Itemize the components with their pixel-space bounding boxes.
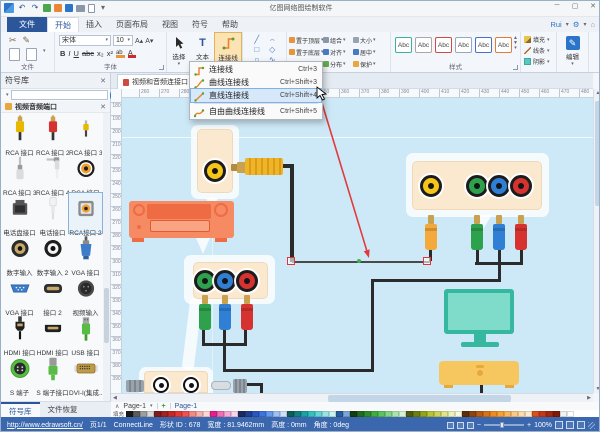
tab-file[interactable]: 文件	[7, 17, 47, 32]
document-icon	[123, 79, 129, 86]
rca-port-green-2[interactable]	[466, 175, 488, 197]
color-swatch-20[interactable]	[266, 411, 273, 417]
color-swatch-52[interactable]	[490, 411, 497, 417]
tab-符号[interactable]: 符号	[185, 17, 215, 32]
ruler-tick: 480	[579, 89, 589, 98]
selected-connector-line[interactable]	[292, 261, 430, 263]
section-close-icon[interactable]: ✕	[100, 103, 106, 111]
rca-plug-green-2[interactable]	[471, 224, 483, 250]
symbol-item-电话盘接口[interactable]: 电话盘接口	[3, 193, 36, 233]
ruler-tick: 440	[499, 89, 509, 98]
symbol-item-数字输入[interactable]: 数字输入	[3, 233, 36, 273]
sidebar-scrollbar[interactable]	[103, 113, 110, 401]
paste-dropdown-icon[interactable]: ▾	[43, 48, 46, 61]
color-swatch-44[interactable]	[434, 411, 441, 417]
zoom-level: 100%	[534, 422, 552, 429]
arrange-icon	[289, 37, 295, 43]
cable[interactable]	[371, 279, 501, 282]
color-swatch-11[interactable]	[203, 411, 210, 417]
speaker-port-1[interactable]	[153, 377, 169, 393]
symbol-item-电话接口[interactable]: 电话接口	[36, 193, 69, 233]
settings-dropdown-icon[interactable]: ▾	[583, 21, 586, 28]
arrange-icon	[323, 37, 329, 43]
color-swatch-12[interactable]	[210, 411, 217, 417]
color-swatch-2[interactable]	[140, 411, 147, 417]
arrange-1-button[interactable]: 置于底层▾	[289, 46, 323, 58]
color-swatch-63[interactable]	[567, 411, 574, 417]
rca-port-yellow-2[interactable]	[420, 175, 442, 197]
rca-plug-blue-2[interactable]	[493, 224, 505, 250]
ruler-tick: 390	[111, 375, 122, 382]
style-group-label: 样式	[391, 61, 520, 71]
color-swatch-22[interactable]	[280, 411, 287, 417]
connector-midpoint-handle[interactable]	[357, 259, 361, 263]
maximize-button[interactable]: ▢	[569, 2, 581, 10]
style-swatch-2[interactable]: Abc	[435, 37, 452, 53]
ruler-tick: 270	[159, 89, 169, 98]
scroll-right-icon[interactable]: ▶	[587, 395, 591, 401]
app-icon[interactable]	[4, 3, 14, 13]
rca-port-red[interactable]	[236, 270, 258, 292]
color-swatch-18[interactable]	[252, 411, 259, 417]
soundbar-knob	[477, 370, 483, 376]
color-swatch-59[interactable]	[539, 411, 546, 417]
symbol-item-视频输入[interactable]: 视频输入	[69, 273, 102, 313]
color-swatch-45[interactable]	[441, 411, 448, 417]
symbol-item-dvi-23[interactable]	[69, 393, 102, 401]
shape-id: 形状 ID : 678	[160, 420, 200, 430]
color-swatch-5[interactable]	[161, 411, 168, 417]
arrange-5-button[interactable]: 分布▾	[323, 58, 353, 70]
arrange-7-button[interactable]: 居中▾	[353, 46, 387, 58]
ruler-tick: 240	[111, 180, 122, 187]
section-title: 视频音频端口	[15, 102, 57, 112]
color-swatch-27[interactable]	[315, 411, 322, 417]
status-bar: http://www.edrawsoft.cn/ 页1/1 ConnectLin…	[1, 417, 600, 432]
add-page-button[interactable]: +	[162, 403, 166, 410]
port-orange-icon	[69, 155, 102, 187]
ribbed-connector[interactable]	[233, 379, 247, 393]
gallery-more-icon[interactable]: ▾	[513, 46, 518, 51]
horizontal-scrollbar[interactable]: ◀ ▶	[111, 393, 593, 402]
symbol-item-VGA 接口[interactable]: VGA 接口	[3, 273, 36, 313]
view-mode-icon-2[interactable]	[457, 422, 464, 429]
symbol-search-input[interactable]	[11, 90, 108, 100]
tab-帮助[interactable]: 帮助	[215, 17, 245, 32]
hdmi-port-icon	[36, 315, 69, 347]
color-swatch-58[interactable]	[532, 411, 539, 417]
cable[interactable]	[202, 343, 226, 346]
color-swatch-53[interactable]	[497, 411, 504, 417]
sidebar-scrollbar-thumb[interactable]	[104, 288, 109, 343]
symbol-library-close-icon[interactable]: ✕	[100, 77, 106, 85]
color-swatch-30[interactable]	[336, 411, 343, 417]
rca-plug-green[interactable]	[199, 304, 211, 330]
grow-font-button[interactable]: A▴	[135, 37, 143, 45]
undo-icon[interactable]: ↶	[17, 3, 27, 13]
color-swatch-38[interactable]	[392, 411, 399, 417]
shrink-font-button[interactable]: A▾	[145, 37, 153, 45]
style-swatch-5[interactable]: Abc	[495, 37, 512, 53]
ruler-tick: 220	[111, 154, 122, 161]
scroll-up-icon[interactable]: ▲	[594, 90, 600, 96]
color-swatch-54[interactable]	[504, 411, 511, 417]
symbol-search-row: ▾	[1, 89, 110, 101]
ruler-tick: 380	[111, 362, 122, 369]
close-button[interactable]: ✕	[587, 2, 599, 10]
page-tab[interactable]: Page-1	[175, 403, 198, 410]
color-swatch-24[interactable]	[294, 411, 301, 417]
cut-icon[interactable]: ✂	[9, 35, 17, 46]
ruler-tick: 300	[111, 258, 122, 265]
connector-endpoint-handle-left[interactable]	[287, 257, 295, 265]
port-black-icon	[3, 235, 36, 267]
pin-icon[interactable]: ⌂	[590, 20, 595, 29]
arrange-icon	[353, 37, 359, 43]
font-dialog-launcher[interactable]	[159, 65, 164, 70]
ruler-tick: 360	[339, 89, 349, 98]
color-swatch-46[interactable]	[448, 411, 455, 417]
print-icon[interactable]	[76, 5, 85, 12]
color-swatch-40[interactable]	[406, 411, 413, 417]
underline-button[interactable]: U	[74, 49, 79, 58]
color-swatch-41[interactable]	[413, 411, 420, 417]
video-in-icon	[69, 275, 102, 307]
zoom-slider[interactable]	[484, 424, 524, 426]
rca-port-green[interactable]	[194, 270, 216, 292]
shape-angle: 角度 : 0deg	[314, 420, 349, 430]
arrange-0-button[interactable]: 置于顶层▾	[289, 34, 323, 46]
vertical-ruler: 1801902002102202302402502602702802903003…	[111, 89, 122, 393]
color-swatch-0[interactable]	[126, 411, 133, 417]
subscript-button[interactable]: x₂	[97, 49, 104, 58]
speaker-port-2[interactable]	[183, 377, 199, 393]
arrange-icon	[323, 49, 329, 55]
paste-icon[interactable]	[9, 48, 20, 61]
quick-access-toolbar: ↶ ↷ ▾	[4, 3, 108, 13]
minimize-button[interactable]: ─	[551, 2, 563, 10]
account-dropdown-icon[interactable]: ▾	[566, 21, 569, 28]
soundbar-slot	[476, 365, 484, 368]
format-painter-icon[interactable]: ✎	[23, 35, 31, 46]
font-name-combobox[interactable]: 宋体▾	[59, 35, 111, 46]
color-swatch-21[interactable]	[273, 411, 280, 417]
ruler-tick: 250	[111, 193, 122, 200]
symbol-item-RCA 接口 4[interactable]: RCA 接口 4	[36, 153, 69, 193]
color-swatch-13[interactable]	[217, 411, 224, 417]
color-swatch-28[interactable]	[322, 411, 329, 417]
save-icon[interactable]	[65, 4, 73, 12]
symbol-item-接口 2[interactable]: 接口 2	[36, 273, 69, 313]
symbol-library-panel: 符号库 ✕ ▾ 视频音频端口 ✕ RCA 接口RCA 接口 2RCA 接口 3R…	[1, 73, 111, 417]
jack-icon	[3, 155, 36, 187]
zoom-in-button[interactable]: +	[527, 422, 531, 429]
strikethrough-button[interactable]: abc	[82, 49, 94, 58]
symbol-item-dvi-21[interactable]	[3, 393, 36, 401]
window-title: 亿图网络图绘制软件	[201, 3, 401, 13]
usb-icon	[69, 315, 102, 347]
symbol-item-RCA 接口[interactable]: RCA 接口	[69, 153, 102, 193]
color-swatch-4[interactable]	[154, 411, 161, 417]
tab-视图[interactable]: 视图	[155, 17, 185, 32]
rca-plug-red-2[interactable]	[515, 224, 527, 250]
symbol-item-DVI-I(集成...[interactable]: DVI-I(集成...	[69, 353, 102, 393]
view-mode-icon-3[interactable]	[467, 422, 474, 429]
phone-plug-icon	[36, 195, 69, 227]
color-swatch-31[interactable]	[343, 411, 350, 417]
connector-endpoint-handle-right[interactable]	[423, 257, 431, 265]
arrange-4-button[interactable]: 对齐▾	[323, 46, 353, 58]
view-mode-icon-1[interactable]	[447, 422, 454, 429]
vertical-scrollbar[interactable]: ▲ ▼	[593, 89, 600, 393]
polygon-tool-icon[interactable]: ◇	[265, 45, 281, 55]
color-swatch-10[interactable]	[196, 411, 203, 417]
arrange-3-button[interactable]: 组合▾	[323, 34, 353, 46]
scroll-left-icon[interactable]: ◀	[113, 395, 117, 401]
color-swatch-6[interactable]	[168, 411, 175, 417]
zoom-out-button[interactable]: −	[477, 422, 481, 429]
style-swatch-3[interactable]: Abc	[455, 37, 472, 53]
page-selector[interactable]: Page-1	[123, 403, 146, 410]
symbol-item-RCA 接口 2[interactable]: RCA 接口 2	[36, 113, 69, 153]
color-swatch-51[interactable]	[483, 411, 490, 417]
zoom-slider-knob[interactable]	[500, 422, 504, 428]
color-swatch-15[interactable]	[231, 411, 238, 417]
superscript-button[interactable]: x²	[107, 49, 113, 58]
vertical-scrollbar-thumb[interactable]	[595, 101, 600, 206]
jack-angled-icon	[36, 155, 69, 187]
color-swatch-8[interactable]	[182, 411, 189, 417]
tab-页面布局[interactable]: 页面布局	[109, 17, 155, 32]
callout-tail-receiver	[196, 238, 210, 254]
color-swatch-29[interactable]	[329, 411, 336, 417]
cable[interactable]	[224, 343, 247, 346]
symbol-item-RCA 接口 3[interactable]: RCA 接口 3	[3, 153, 36, 193]
color-swatch-61[interactable]	[553, 411, 560, 417]
color-swatch-32[interactable]	[350, 411, 357, 417]
app-window: ↶ ↷ ▾ 亿图网络图绘制软件 ─ ▢ ✕ 文件 开始插入页面布局视图符号帮助 …	[0, 0, 600, 432]
symbol-item-RCA 接口 3[interactable]: RCA 接口 3	[69, 113, 102, 153]
rca-plug-blue[interactable]	[219, 304, 231, 330]
print-preview-icon[interactable]	[88, 4, 95, 13]
select-tool-button[interactable]: 选择 ▾	[167, 32, 191, 72]
line-button[interactable]: 线条▾	[521, 45, 556, 56]
color-swatch-17[interactable]	[245, 411, 252, 417]
ruler-tick: 210	[111, 141, 122, 148]
ruler-tick: 370	[359, 89, 369, 98]
clipboard-group-label: 文件	[1, 61, 54, 71]
color-swatch-3[interactable]	[147, 411, 154, 417]
new-icon[interactable]	[54, 4, 62, 12]
color-swatch-7[interactable]	[175, 411, 182, 417]
rca-port-red-2[interactable]	[510, 175, 532, 197]
menu-item-连接线[interactable]: 连接线Ctrl+3	[191, 63, 321, 76]
cable[interactable]	[290, 164, 294, 262]
cable[interactable]	[223, 330, 226, 371]
rca-port-blue[interactable]	[214, 270, 236, 292]
highlight-color-button[interactable]: ab	[116, 50, 125, 58]
rca-plug-red[interactable]	[241, 304, 253, 330]
cable[interactable]	[371, 279, 374, 371]
gear-icon[interactable]: ⚙	[573, 20, 580, 29]
drawing-canvas[interactable]	[122, 98, 593, 393]
color-swatch-43[interactable]	[427, 411, 434, 417]
menu-item-直线连接线[interactable]: 直线连接线Ctrl+Shift+4	[191, 89, 321, 102]
ribbon-tabs: 开始插入页面布局视图符号帮助	[47, 17, 245, 32]
font-size-combobox[interactable]: 10▾	[113, 35, 133, 46]
ruler-tick: 330	[111, 297, 122, 304]
color-swatch-16[interactable]	[238, 411, 245, 417]
svideo-plug-gray[interactable]	[211, 381, 231, 390]
color-swatch-23[interactable]	[287, 411, 294, 417]
fill-button[interactable]: 填充▾	[521, 34, 556, 45]
ruler-tick: 450	[519, 89, 529, 98]
color-swatch-48[interactable]	[462, 411, 469, 417]
scroll-down-icon[interactable]: ▼	[594, 386, 600, 392]
collapse-icon[interactable]: ∧	[115, 403, 119, 410]
symbol-section-header[interactable]: 视频音频端口 ✕	[1, 101, 110, 113]
tv[interactable]	[444, 289, 514, 334]
port-wide-icon	[36, 275, 69, 307]
hdmi-cable-icon	[3, 315, 36, 347]
rectangle-tool-icon[interactable]: □	[249, 45, 265, 55]
edit-icon[interactable]: ✎	[566, 36, 580, 50]
connector-dropdown-menu: 连接线Ctrl+3曲线连接线Ctrl+Shift+3直线连接线Ctrl+Shif…	[189, 61, 323, 120]
line-tool-icon[interactable]: ╱	[249, 35, 265, 45]
cable[interactable]	[260, 383, 263, 393]
color-swatch-47[interactable]	[455, 411, 462, 417]
color-swatch-26[interactable]	[308, 411, 315, 417]
bold-button[interactable]: B	[60, 49, 65, 58]
symbol-grid: RCA 接口RCA 接口 2RCA 接口 3RCA 接口 3RCA 接口 4RC…	[1, 113, 104, 401]
rca-port-blue-2[interactable]	[488, 175, 510, 197]
account-user[interactable]: Rui	[550, 20, 561, 29]
color-swatch-14[interactable]	[224, 411, 231, 417]
cable[interactable]	[223, 369, 374, 372]
curve-connector-icon	[194, 77, 205, 88]
gallery-scroll-arrows: ▲ ▼ ▾	[513, 36, 518, 51]
color-swatch-50[interactable]	[476, 411, 483, 417]
receiver-button	[137, 225, 141, 229]
edit-button[interactable]: 编辑	[566, 51, 579, 61]
symbol-item-USB 接口[interactable]: USB 接口	[69, 313, 102, 353]
title-bar: ↶ ↷ ▾ 亿图网络图绘制软件 ─ ▢ ✕	[1, 1, 600, 17]
soundbar-foot	[444, 385, 453, 388]
style-dialog-launcher[interactable]	[513, 65, 518, 70]
phone-jack-icon	[3, 195, 36, 227]
symbol-item-数字输入 2[interactable]: 数字输入 2	[36, 233, 69, 273]
italic-button[interactable]: I	[68, 49, 70, 58]
connector-connector-icon	[194, 64, 205, 75]
arrange-icon	[353, 49, 359, 55]
ruler-tick: 320	[111, 284, 122, 291]
symbol-item-VGA 接口[interactable]: VGA 接口	[69, 233, 102, 273]
horizontal-scrollbar-thumb[interactable]	[328, 395, 511, 402]
website-link[interactable]: http://www.edrawsoft.cn/	[7, 422, 83, 429]
account-area: Rui ▾ ⚙ ▾ ⌂	[550, 17, 595, 31]
fit-page-icon[interactable]	[555, 421, 563, 429]
symbol-item-S 端子[interactable]: S 端子	[3, 353, 36, 393]
color-swatch-1[interactable]	[133, 411, 140, 417]
shadow-button[interactable]: 阴影▾	[521, 56, 556, 67]
color-swatch-56[interactable]	[518, 411, 525, 417]
arc-tool-icon[interactable]: ⌢	[265, 35, 281, 45]
paste-special-icon[interactable]	[26, 48, 37, 61]
color-swatch-19[interactable]	[259, 411, 266, 417]
tool-name: ConnectLine	[114, 422, 153, 429]
arrange-6-button[interactable]: 大小▾	[353, 34, 387, 46]
pan-icon[interactable]	[566, 421, 574, 429]
cable[interactable]	[480, 385, 483, 393]
color-swatch-33[interactable]	[357, 411, 364, 417]
tab-插入[interactable]: 插入	[79, 17, 109, 32]
style-swatch-4[interactable]: Abc	[475, 37, 492, 53]
redo-icon[interactable]: ↷	[30, 3, 40, 13]
page-indicator: 页1/1	[90, 420, 107, 430]
color-swatch-9[interactable]	[189, 411, 196, 417]
color-swatch-49[interactable]	[469, 411, 476, 417]
receiver-knob-left	[133, 204, 145, 216]
color-swatch-60[interactable]	[546, 411, 553, 417]
symbol-item-HDMI 接口[interactable]: HDMI 接口	[3, 313, 36, 353]
open-icon[interactable]	[43, 4, 51, 12]
gray-connector-left[interactable]	[126, 380, 144, 392]
ruler-tick: 350	[111, 323, 122, 330]
font-color-button[interactable]: A	[128, 50, 136, 58]
rca-plug-yellow[interactable]	[245, 158, 283, 175]
symbol-item-dvi-22[interactable]	[36, 393, 69, 401]
color-swatch-57[interactable]	[525, 411, 532, 417]
receiver-display	[150, 220, 210, 232]
magnifier-icon[interactable]	[577, 421, 585, 429]
rca-plug-yellow-2[interactable]	[425, 224, 437, 250]
color-swatch-36[interactable]	[378, 411, 385, 417]
color-swatch-25[interactable]	[301, 411, 308, 417]
color-swatch-42[interactable]	[420, 411, 427, 417]
ruler-tick: 430	[479, 89, 489, 98]
symbol-item-HDMI 接口[interactable]: HDMI 接口	[36, 313, 69, 353]
tab-file-recovery[interactable]: 文件恢复	[40, 402, 86, 417]
plug-mini-icon	[69, 115, 102, 147]
qat-more-icon[interactable]: ▾	[98, 3, 108, 13]
color-swatch-62[interactable]	[560, 411, 567, 417]
tab-symbol-library[interactable]: 符号库	[1, 402, 40, 417]
menu-item-曲线连接线[interactable]: 曲线连接线Ctrl+Shift+3	[191, 76, 321, 89]
symbol-item-S 端子接口[interactable]: S 端子接口	[36, 353, 69, 393]
rca-port-yellow[interactable]	[204, 160, 226, 182]
style-swatch-1[interactable]: Abc	[415, 37, 432, 53]
style-swatch-0[interactable]: Abc	[395, 37, 412, 53]
color-swatch-55[interactable]	[511, 411, 518, 417]
ruler-tick: 390	[399, 89, 409, 98]
arrange-8-button[interactable]: 保护▾	[353, 58, 387, 70]
color-swatch-39[interactable]	[399, 411, 406, 417]
ruler-tick: 340	[111, 310, 122, 317]
mouse-cursor	[315, 86, 327, 107]
tab-开始[interactable]: 开始	[47, 17, 79, 32]
library-dropdown-icon[interactable]: ▾	[6, 92, 9, 98]
soundbar-foot	[505, 385, 514, 388]
color-swatch-35[interactable]	[371, 411, 378, 417]
page-selector-dropdown-icon[interactable]: ▾	[150, 403, 153, 409]
menu-item-自由曲线连接线[interactable]: 自由曲线连接线Ctrl+Shift+5	[191, 105, 321, 118]
color-swatch-37[interactable]	[385, 411, 392, 417]
vga-port-icon	[3, 275, 36, 307]
symbol-item-RCA 接口[interactable]: RCA 接口	[3, 113, 36, 153]
symbol-item-RCA接口 2[interactable]: RCA接口 2	[69, 193, 102, 233]
fill-icon	[524, 36, 531, 43]
color-swatch-34[interactable]	[364, 411, 371, 417]
